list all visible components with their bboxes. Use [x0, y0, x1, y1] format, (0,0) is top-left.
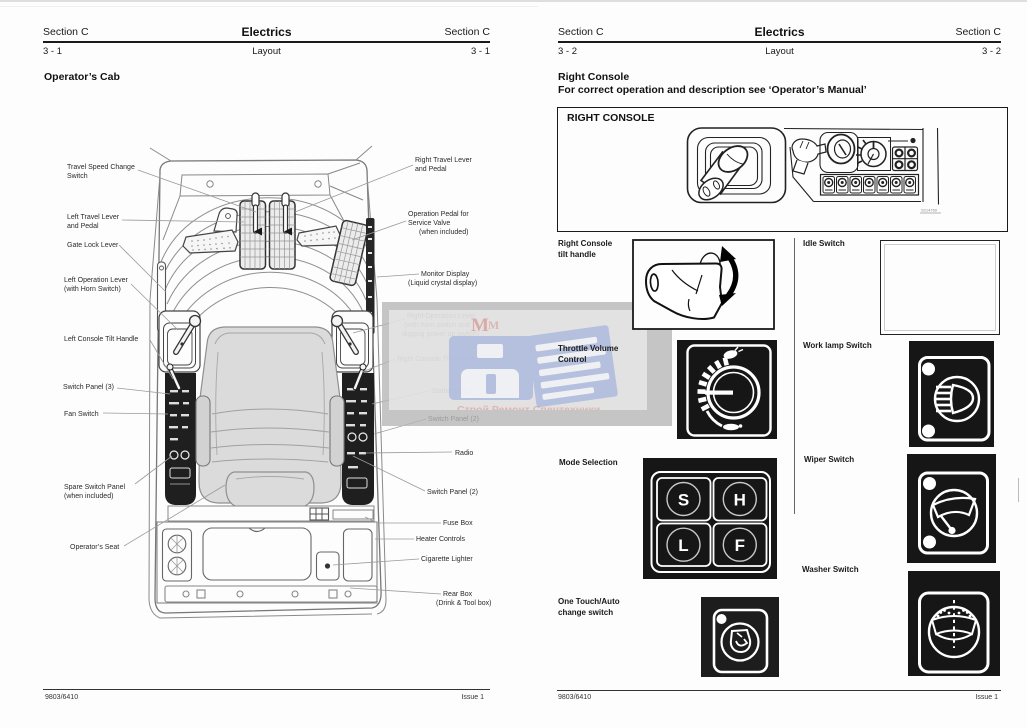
svg-text:Operation Pedal for: Operation Pedal for: [408, 211, 469, 218]
svg-text:(Liquid crystal display): (Liquid crystal display): [408, 280, 477, 287]
svg-text:Travel Speed Change: Travel Speed Change: [67, 164, 135, 171]
svg-text:(with Horn Switch): (with Horn Switch): [64, 286, 121, 293]
svg-text:Service Valve: Service Valve: [408, 220, 450, 227]
svg-text:S214760: S214760: [921, 208, 938, 213]
svg-text:Fuse Box: Fuse Box: [443, 520, 473, 527]
svg-text:and Pedal: and Pedal: [67, 223, 99, 230]
svg-text:S: S: [678, 491, 689, 510]
svg-text:(when included): (when included): [64, 493, 113, 500]
svg-text:Operator’s Seat: Operator’s Seat: [70, 544, 119, 551]
svg-text:(Drink & Tool box): (Drink & Tool box): [436, 600, 492, 607]
svg-text:L: L: [678, 536, 688, 555]
svg-text:(when included): (when included): [419, 229, 468, 236]
svg-text:Rear Box: Rear Box: [443, 591, 473, 598]
svg-text:Switch Panel (3): Switch Panel (3): [63, 384, 114, 391]
svg-text:Spare Switch Panel: Spare Switch Panel: [64, 484, 126, 491]
svg-text:Radio: Radio: [455, 450, 473, 457]
svg-text:М: М: [488, 318, 499, 332]
svg-text:Switch: Switch: [67, 173, 88, 180]
svg-text:Monitor Display: Monitor Display: [421, 271, 470, 278]
svg-text:F: F: [735, 536, 745, 555]
svg-text:Left Travel Lever: Left Travel Lever: [67, 214, 120, 221]
svg-text:Gate Lock Lever: Gate Lock Lever: [67, 242, 119, 249]
svg-text:Right Travel Lever: Right Travel Lever: [415, 157, 472, 164]
svg-text:Cigarette Lighter: Cigarette Lighter: [421, 556, 473, 563]
svg-text:Left Operation Lever: Left Operation Lever: [64, 277, 128, 284]
svg-text:Строй Ремонт Спецтехники: Строй Ремонт Спецтехники: [457, 404, 600, 410]
svg-text:M: M: [471, 315, 489, 336]
svg-text:Fan Switch: Fan Switch: [64, 411, 99, 418]
svg-text:Left Console Tilt Handle: Left Console Tilt Handle: [64, 336, 138, 343]
svg-text:H: H: [734, 491, 746, 510]
svg-text:Heater Controls: Heater Controls: [416, 536, 466, 543]
svg-text:and Pedal: and Pedal: [415, 166, 447, 173]
svg-text:Switch Panel (2): Switch Panel (2): [427, 489, 478, 496]
